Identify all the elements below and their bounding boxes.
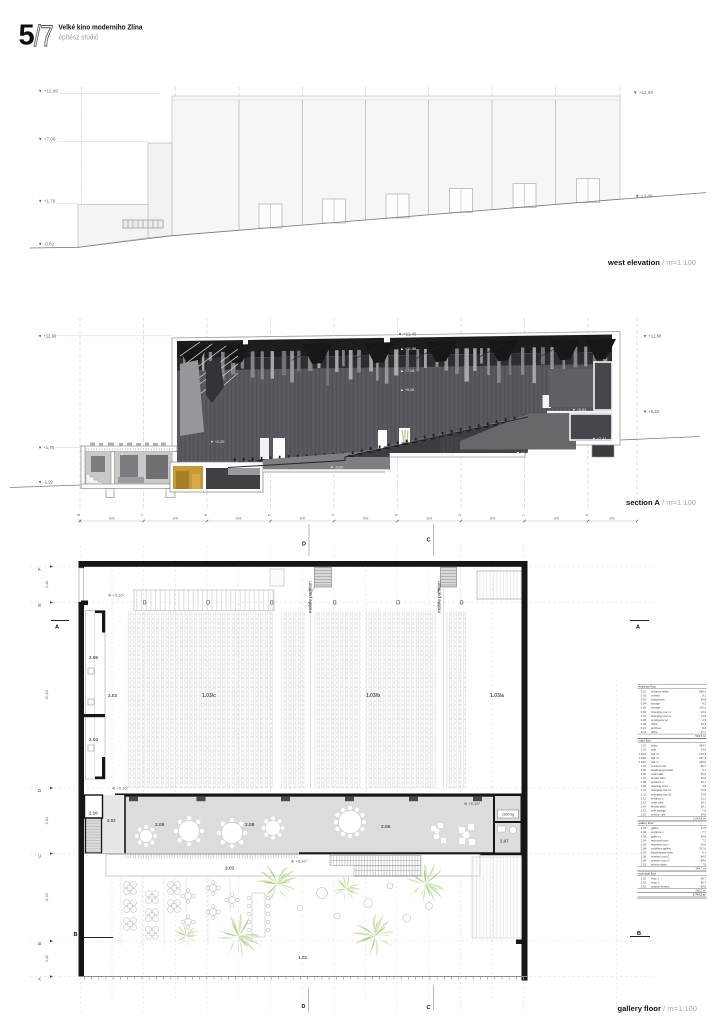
- svg-text:entrance sас: entrance sас: [651, 764, 667, 768]
- svg-text:13,8: 13,8: [701, 714, 707, 718]
- svg-text:0.11: 0.11: [641, 730, 647, 734]
- svg-text:24,3: 24,3: [701, 710, 707, 714]
- svg-text:4: 4: [331, 514, 335, 516]
- svg-text:1.02: 1.02: [641, 748, 647, 752]
- svg-text:technical room: technical room: [651, 838, 669, 842]
- svg-text:0.09: 0.09: [641, 722, 647, 726]
- svg-text:1.04: 1.04: [641, 764, 647, 768]
- svg-text:2.03: 2.03: [641, 834, 647, 838]
- svg-text:cloackroom: cloackroom: [651, 698, 666, 702]
- svg-text:2 744,2 m²: 2 744,2 m²: [693, 893, 706, 897]
- svg-text:D: D: [302, 1004, 306, 1010]
- svg-text:⊕ +5,16¹: ⊕ +5,16¹: [464, 801, 481, 806]
- svg-text:18,7: 18,7: [701, 800, 707, 804]
- svg-text:9/9: 9/9: [427, 517, 432, 521]
- svg-text:▼ -0,60: ▼ -0,60: [330, 466, 343, 470]
- svg-text:9/9: 9/9: [554, 517, 559, 521]
- svg-text:-84,9: -84,9: [700, 884, 707, 888]
- svg-text:41,5: 41,5: [701, 826, 707, 830]
- svg-text:▼ +12,43: ▼ +12,43: [398, 331, 417, 336]
- svg-text:technical room: technical room: [651, 842, 669, 846]
- svg-text:handicapped toilet: handicapped toilet: [651, 850, 673, 854]
- svg-text:exertion room 1: exertion room 1: [651, 855, 670, 859]
- svg-text:3.01: 3.01: [641, 876, 647, 880]
- svg-text:3,48: 3,48: [44, 580, 49, 589]
- svg-text:0.01: 0.01: [641, 690, 647, 694]
- svg-text:2.09: 2.09: [155, 822, 165, 828]
- svg-text:0.08: 0.08: [641, 718, 647, 722]
- svg-text:1.08: 1.08: [641, 780, 647, 784]
- svg-text:2.06: 2.06: [381, 824, 391, 830]
- svg-text:8: 8: [77, 514, 81, 516]
- svg-text:male toilet: male toilet: [651, 800, 664, 804]
- svg-text:A: A: [55, 625, 59, 631]
- svg-text:1.01: 1.01: [641, 744, 647, 748]
- svg-text:építész stúdió: építész stúdió: [59, 33, 99, 42]
- svg-text:1.03/c: 1.03/c: [639, 760, 647, 764]
- svg-text:2.05: 2.05: [641, 842, 647, 846]
- svg-text:2.07: 2.07: [500, 839, 509, 844]
- svg-text:25,3: 25,3: [701, 722, 707, 726]
- svg-text:1600 kg: 1600 kg: [502, 813, 514, 817]
- svg-text:2.03: 2.03: [108, 693, 117, 698]
- svg-text:▼ +2,44: ▼ +2,44: [592, 437, 606, 441]
- svg-text:female toilet: female toilet: [651, 804, 666, 808]
- svg-text:entrance lobby: entrance lobby: [651, 690, 669, 694]
- svg-text:changing room 2: changing room 2: [651, 714, 672, 718]
- svg-text:1.12: 1.12: [641, 796, 647, 800]
- svg-text:6: 6: [204, 514, 208, 516]
- svg-text:hall / b: hall / b: [651, 756, 659, 760]
- svg-text:1.043,8 m²: 1.043,8 m²: [693, 817, 706, 821]
- svg-text:▼ +12,60: ▼ +12,60: [38, 88, 58, 93]
- svg-text:changing room 1: changing room 1: [651, 710, 672, 714]
- svg-text:male toilet: male toilet: [651, 772, 664, 776]
- svg-text:0.04: 0.04: [641, 702, 647, 706]
- svg-text:exertion room 2: exertion room 2: [651, 859, 670, 863]
- svg-text:⊕ +5,16¹: ⊕ +5,16¹: [112, 786, 129, 791]
- svg-text:⊕ +5,16¹: ⊕ +5,16¹: [291, 859, 308, 864]
- svg-text:lobby: lobby: [651, 744, 658, 748]
- svg-text:2.10: 2.10: [641, 863, 647, 867]
- svg-text:1.16: 1.16: [641, 813, 647, 817]
- svg-text:F: F: [37, 567, 43, 570]
- svg-text:technical floor: technical floor: [639, 871, 657, 875]
- svg-text:west elevation / m=1:100: west elevation / m=1:100: [607, 258, 696, 267]
- svg-text:25,6: 25,6: [701, 776, 707, 780]
- svg-text:hvac 2: hvac 2: [651, 880, 659, 884]
- svg-text:2.08: 2.08: [641, 855, 647, 859]
- svg-text:1.03/b: 1.03/b: [639, 756, 647, 760]
- svg-text:24,4: 24,4: [701, 748, 707, 752]
- svg-text:Velké kino moderniho Zlína: Velké kino moderniho Zlína: [59, 23, 144, 32]
- svg-text:26,7: 26,7: [701, 780, 707, 784]
- svg-text:▲ +5,06: ▲ +5,06: [400, 388, 414, 392]
- svg-text:2.01: 2.01: [641, 826, 647, 830]
- svg-text:storage: storage: [651, 702, 660, 706]
- svg-text:95,7: 95,7: [701, 880, 707, 884]
- svg-text:120,2: 120,2: [699, 706, 706, 710]
- svg-text:9/9: 9/9: [363, 517, 368, 521]
- svg-text:main floor: main floor: [639, 739, 652, 743]
- svg-text:entrance c: entrance c: [651, 780, 664, 784]
- svg-text:1.14: 1.14: [641, 804, 647, 808]
- svg-text:handicapped toilet: handicapped toilet: [651, 768, 673, 772]
- svg-text:2.08: 2.08: [245, 822, 255, 828]
- svg-text:cinema: cinema: [651, 694, 660, 698]
- svg-text:1.13: 1.13: [641, 800, 647, 804]
- svg-text:2.02: 2.02: [641, 830, 647, 834]
- svg-text:1.03/c: 1.03/c: [202, 693, 216, 699]
- svg-text:6,1: 6,1: [702, 768, 706, 772]
- svg-text:454,7: 454,7: [699, 744, 706, 748]
- svg-text:hall / c: hall / c: [651, 760, 659, 764]
- svg-text:gallery c: gallery c: [651, 834, 662, 838]
- svg-text:hvac 1: hvac 1: [651, 876, 659, 880]
- svg-text:▼ +6,33: ▼ +6,33: [643, 409, 660, 414]
- svg-text:employees wc: employees wc: [651, 718, 669, 722]
- svg-text:A: A: [636, 625, 640, 631]
- svg-text:0.10: 0.10: [641, 726, 647, 730]
- svg-text:C: C: [427, 1005, 431, 1011]
- svg-text:1.07: 1.07: [641, 776, 647, 780]
- svg-text:18,7: 18,7: [701, 804, 707, 808]
- svg-text:5,80: 5,80: [44, 816, 49, 825]
- svg-text:448,0: 448,0: [699, 760, 706, 764]
- svg-text:outdoor terrace: outdoor terrace: [651, 884, 670, 888]
- svg-text:176,3: 176,3: [699, 752, 706, 756]
- svg-text:3,8: 3,8: [702, 784, 706, 788]
- svg-text:5: 5: [19, 20, 35, 52]
- svg-text:0.06: 0.06: [641, 710, 647, 714]
- svg-text:⊕ +5,16¹: ⊕ +5,16¹: [108, 593, 125, 598]
- svg-text:4,5: 4,5: [702, 718, 706, 722]
- svg-text:cafe: cafe: [651, 748, 657, 752]
- svg-text:B: B: [637, 931, 641, 937]
- svg-text:55,8: 55,8: [701, 834, 707, 838]
- svg-text:changing room A: changing room A: [651, 788, 671, 792]
- svg-text:E: E: [37, 603, 43, 606]
- svg-text:2.04: 2.04: [641, 838, 647, 842]
- svg-text:9/9: 9/9: [300, 517, 305, 521]
- svg-text:▼ +1,76: ▼ +1,76: [38, 198, 56, 203]
- svg-text:section A / m=1:100: section A / m=1:100: [626, 498, 696, 507]
- svg-text:/7: /7: [34, 20, 54, 53]
- svg-text:76,8: 76,8: [701, 792, 707, 796]
- svg-text:76,8: 76,8: [701, 788, 707, 792]
- svg-text:2.02: 2.02: [107, 818, 116, 823]
- svg-text:1.05: 1.05: [641, 768, 647, 772]
- svg-text:2.05: 2.05: [89, 655, 98, 660]
- svg-text:2.04: 2.04: [89, 737, 98, 742]
- svg-text:▲ +11,88: ▲ +11,88: [400, 347, 416, 351]
- svg-text:gallery floor: gallery floor: [639, 821, 654, 825]
- svg-text:19,0: 19,0: [701, 842, 707, 846]
- svg-text:0.05: 0.05: [641, 706, 647, 710]
- svg-text:7,9: 7,9: [702, 863, 706, 867]
- svg-text:▼: ▼: [120, 453, 124, 457]
- svg-text:84,8: 84,8: [701, 698, 707, 702]
- svg-text:archives: archives: [651, 726, 662, 730]
- svg-text:service stairs: service stairs: [651, 863, 667, 867]
- svg-text:9/9: 9/9: [609, 517, 614, 521]
- svg-text:344,7 m²: 344,7 m²: [695, 867, 706, 871]
- svg-text:cleaning room: cleaning room: [651, 784, 669, 788]
- svg-text:changing room B: changing room B: [651, 792, 672, 796]
- svg-text:C: C: [37, 854, 43, 858]
- svg-text:1.03/a: 1.03/a: [490, 693, 504, 699]
- svg-text:9/9: 9/9: [490, 517, 495, 521]
- svg-text:9,3: 9,3: [702, 702, 706, 706]
- svg-text:8,1: 8,1: [702, 694, 706, 698]
- svg-text:0.02: 0.02: [641, 694, 647, 698]
- svg-text:1.01: 1.01: [298, 955, 308, 961]
- svg-text:office: office: [651, 722, 658, 726]
- svg-text:1.09: 1.09: [641, 784, 647, 788]
- svg-text:1: 1: [522, 514, 526, 516]
- svg-text:entrance c: entrance c: [651, 830, 664, 834]
- svg-text:1.06: 1.06: [641, 772, 647, 776]
- svg-text:-84,0: -84,0: [700, 859, 707, 863]
- svg-text:282,2 m²: 282,2 m²: [695, 888, 706, 892]
- svg-text:▼ +1,76: ▼ +1,76: [38, 445, 55, 450]
- svg-text:entrance floor: entrance floor: [639, 685, 657, 689]
- svg-text:▼ +12,60: ▼ +12,60: [643, 333, 662, 338]
- svg-text:1.15: 1.15: [641, 808, 647, 812]
- svg-text:mobile partition: mobile partition: [437, 581, 442, 613]
- svg-text:1.11: 1.11: [641, 792, 647, 796]
- svg-text:▼ +12,60: ▼ +12,60: [38, 333, 57, 338]
- svg-text:0: 0: [585, 514, 589, 516]
- svg-text:▼ +5,51: ▼ +5,51: [572, 408, 586, 412]
- svg-text:25,6: 25,6: [701, 772, 707, 776]
- svg-text:267,3: 267,3: [699, 756, 706, 760]
- svg-text:2.01: 2.01: [225, 866, 235, 872]
- svg-text:3.02: 3.02: [641, 880, 647, 884]
- svg-text:2.07: 2.07: [641, 850, 647, 854]
- svg-text:cafe storage: cafe storage: [651, 808, 666, 812]
- svg-text:▼ -1,92: ▼ -1,92: [38, 479, 54, 484]
- svg-text:▼ +12,60: ▼ +12,60: [633, 90, 653, 95]
- svg-text:1.03/b: 1.03/b: [366, 693, 380, 699]
- svg-text:B: B: [74, 932, 78, 938]
- svg-text:female toilet: female toilet: [651, 776, 666, 780]
- svg-text:8,60: 8,60: [44, 892, 49, 901]
- svg-text:2.09: 2.09: [641, 859, 647, 863]
- svg-text:0.07: 0.07: [641, 714, 647, 718]
- svg-text:entrance c: entrance c: [651, 796, 664, 800]
- svg-text:9/9: 9/9: [236, 517, 241, 521]
- svg-text:3,46: 3,46: [44, 954, 49, 963]
- svg-text:594,5 m²: 594,5 m²: [695, 734, 706, 738]
- svg-text:686,3: 686,3: [699, 690, 706, 694]
- svg-text:1.10: 1.10: [641, 788, 647, 792]
- svg-text:D: D: [37, 788, 43, 792]
- svg-text:service cafe: service cafe: [651, 813, 666, 817]
- svg-text:mobile partition: mobile partition: [308, 581, 313, 613]
- svg-text:▼ +3,00: ▼ +3,00: [440, 453, 454, 457]
- svg-text:307,6: 307,6: [699, 846, 706, 850]
- svg-text:9/9: 9/9: [109, 517, 114, 521]
- svg-text:2: 2: [458, 514, 462, 516]
- svg-text:3: 3: [395, 514, 399, 516]
- svg-text:-84,0: -84,0: [700, 855, 707, 859]
- svg-text:7,4: 7,4: [702, 808, 706, 812]
- svg-text:2.10: 2.10: [89, 811, 98, 816]
- svg-text:▼ +2,40: ▼ +2,40: [635, 194, 653, 199]
- svg-text:C: C: [427, 538, 431, 544]
- svg-text:5: 5: [268, 514, 272, 516]
- svg-text:16,80: 16,80: [44, 689, 49, 700]
- svg-text:office: office: [651, 730, 658, 734]
- svg-text:11,7: 11,7: [701, 796, 707, 800]
- svg-text:▼ +1,18: ▼ +1,18: [516, 451, 530, 455]
- svg-text:48,7: 48,7: [701, 876, 707, 880]
- svg-text:2.06: 2.06: [641, 846, 647, 850]
- svg-text:6,1: 6,1: [702, 850, 706, 854]
- svg-text:7: 7: [141, 514, 145, 516]
- svg-text:▲ +7,08: ▲ +7,08: [400, 369, 414, 373]
- svg-text:gallery floor / m=1:100: gallery floor / m=1:100: [617, 1004, 697, 1013]
- svg-text:▼ +0,20: ▼ +0,20: [210, 440, 224, 444]
- svg-text:▼ +7,06: ▼ +7,06: [38, 136, 56, 141]
- svg-text:B: B: [37, 942, 43, 945]
- svg-text:9/9: 9/9: [173, 517, 178, 521]
- svg-text:gallery: gallery: [651, 826, 660, 830]
- svg-text:exhibition gallery: exhibition gallery: [651, 846, 672, 850]
- svg-text:7,2: 7,2: [702, 838, 706, 842]
- svg-text:8,2: 8,2: [702, 726, 706, 730]
- svg-text:storage: storage: [651, 706, 660, 710]
- svg-text:1.03/a: 1.03/a: [639, 752, 647, 756]
- svg-text:86,7: 86,7: [701, 764, 707, 768]
- svg-text:0.03: 0.03: [641, 698, 647, 702]
- svg-text:3.52: 3.52: [641, 884, 647, 888]
- svg-text:24,6: 24,6: [701, 813, 707, 817]
- svg-text:hall / a: hall / a: [651, 752, 659, 756]
- svg-text:D: D: [302, 542, 306, 548]
- svg-text:27,1: 27,1: [701, 730, 707, 734]
- svg-text:7,7: 7,7: [702, 830, 706, 834]
- svg-text:▼ -0,82: ▼ -0,82: [38, 242, 55, 247]
